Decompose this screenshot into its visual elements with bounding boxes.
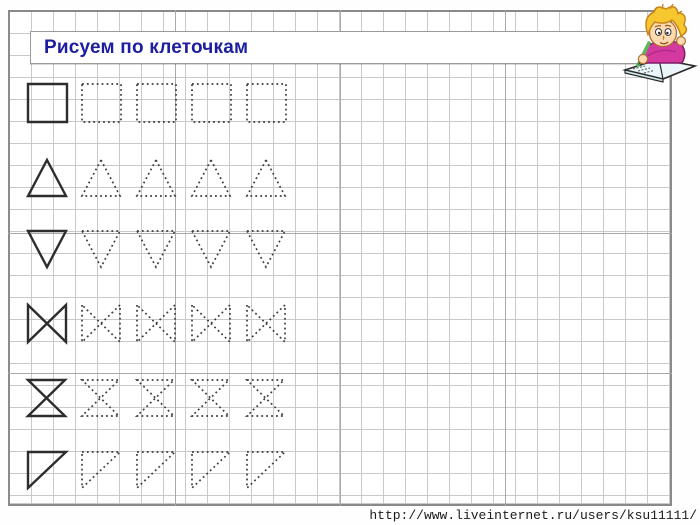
- square-dotted-trace-3: [192, 84, 231, 122]
- mascot-head: [646, 4, 686, 47]
- triangle-up-solid-example: [28, 160, 66, 196]
- right-triangle-dotted-trace-3: [192, 452, 230, 488]
- hourglass-solid-example: [28, 380, 65, 416]
- triangle-up-dotted-trace-4: [247, 160, 285, 196]
- square-dotted-trace-2: [137, 84, 176, 122]
- hourglass-dotted-trace-1: [82, 380, 119, 416]
- triangle-down-dotted-trace-4: [247, 231, 285, 267]
- bowtie-dotted-trace-2: [137, 305, 175, 342]
- hourglass-dotted-trace-3: [192, 380, 229, 416]
- worksheet-page: Рисуем по клеточкам: [0, 0, 700, 525]
- bowtie-dotted-trace-1: [82, 305, 120, 342]
- square-dotted-trace-4: [247, 84, 286, 122]
- square-dotted-trace-1: [82, 84, 121, 122]
- triangle-down-dotted-trace-1: [82, 231, 120, 267]
- hourglass-dotted-trace-2: [137, 380, 174, 416]
- right-triangle-dotted-trace-1: [82, 452, 120, 488]
- triangle-down-dotted-trace-3: [192, 231, 230, 267]
- shape-rows: [0, 0, 700, 525]
- boy-writing-mascot: [618, 3, 700, 91]
- bowtie-dotted-trace-4: [247, 305, 285, 342]
- triangle-up-dotted-trace-2: [137, 160, 175, 196]
- triangle-up-dotted-trace-3: [192, 160, 230, 196]
- bowtie-solid-example: [28, 305, 66, 342]
- square-solid-example: [28, 84, 67, 122]
- right-triangle-solid-example: [28, 452, 66, 488]
- triangle-down-solid-example: [28, 231, 66, 267]
- triangle-up-dotted-trace-1: [82, 160, 120, 196]
- right-triangle-dotted-trace-2: [137, 452, 175, 488]
- right-triangle-dotted-trace-4: [247, 452, 285, 488]
- hourglass-dotted-trace-4: [247, 380, 284, 416]
- url-caption: http://www.liveinternet.ru/users/ksu1111…: [369, 508, 697, 523]
- mascot-hand: [638, 54, 647, 63]
- triangle-down-dotted-trace-2: [137, 231, 175, 267]
- bowtie-dotted-trace-3: [192, 305, 230, 342]
